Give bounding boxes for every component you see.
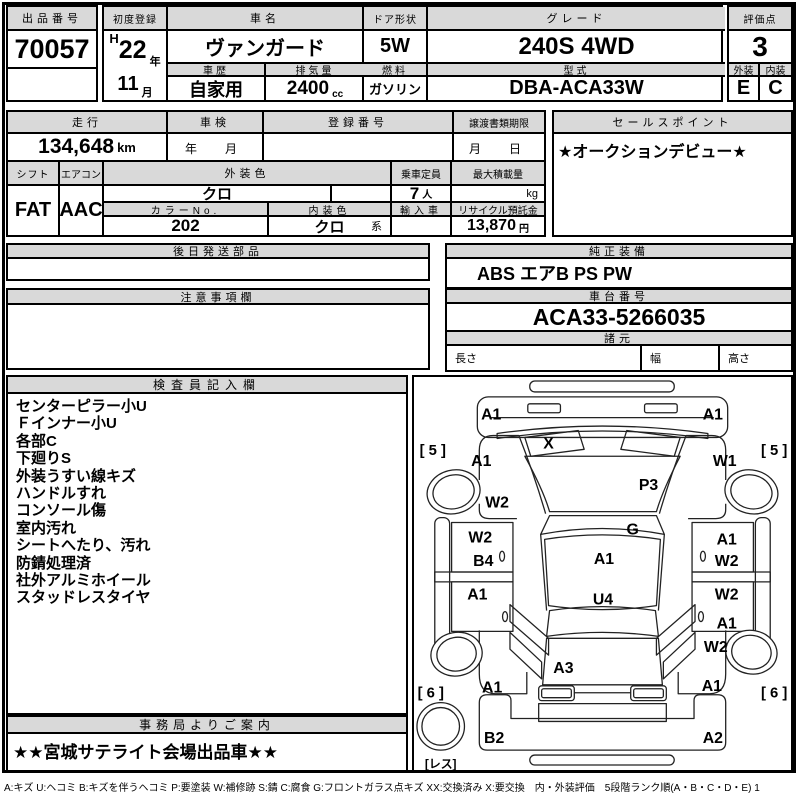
damage-marker: A1	[467, 587, 487, 604]
first-reg-column: 初度登録 H 22 年 11 月	[104, 7, 168, 100]
chassis-value: ACA33-5266035	[447, 304, 791, 332]
mileage-number: 134,648	[38, 135, 114, 159]
car-name-column: 車名 ヴァンガード 車歴 排気量 自家用 2400 cc	[168, 7, 364, 100]
spec-length: 長さ	[447, 346, 642, 370]
transfer-value: 月 日	[454, 134, 544, 162]
damage-marker: G	[627, 521, 639, 538]
damage-marker: A1	[481, 407, 501, 424]
inspector-note: Ｆインナー小U	[16, 415, 396, 432]
inspector-note: 室内汚れ	[16, 520, 396, 537]
exterior-label: 外装	[729, 64, 760, 77]
notes-box: 注意事項欄	[6, 288, 430, 370]
damage-marker: A1	[471, 453, 491, 470]
office-box: 事務局よりご案内 ★★宮城サテライト会場出品車★★	[6, 715, 408, 772]
later-parts-label: 後日発送部品	[8, 245, 428, 259]
legend-line: A:キズ U:ヘコミ B:キズを伴うヘコミ P:要塗装 W:補修跡 S:錆 C:…	[4, 779, 796, 794]
interior-label: 内装	[760, 64, 791, 77]
capacity-unit: 人	[422, 186, 432, 201]
damage-marker: A3	[553, 660, 573, 677]
lot-number-value: 70057	[8, 31, 96, 69]
ext-color-value: クロ	[104, 186, 332, 203]
import-label: 輸入車	[392, 203, 452, 217]
displacement-label: 排気量	[266, 64, 364, 77]
inspector-note: コンソール傷	[16, 502, 396, 519]
damage-marker: A1	[482, 680, 502, 697]
damage-marker: W1	[713, 453, 737, 470]
displacement-unit: cc	[332, 89, 343, 100]
door-column: ドア形状 5W 燃料 ガソリン	[364, 7, 428, 100]
mileage-label: 走行	[8, 112, 168, 134]
inspection-value: 年 月	[168, 134, 264, 162]
fuel-label: 燃料	[364, 64, 426, 77]
damage-marker: A2	[703, 730, 723, 747]
sales-point-box: セールスポイント ★オークションデビュー★	[552, 110, 793, 237]
aircon-label: エアコン	[60, 162, 104, 186]
first-reg-month: 11 月	[104, 69, 166, 100]
damage-marker: B4	[473, 553, 493, 570]
car-diagram-svg: A1A1X[ 5 ][ 5 ]A1W1P3W2GW2B4A1W2A1U4A1W2…	[414, 377, 791, 770]
damage-marker: [レス]	[425, 757, 457, 770]
lot-number-empty-cell	[8, 69, 96, 100]
grade-column: グレード 240S 4WD 型式 DBA-ACA33W	[428, 7, 725, 100]
exterior-grade: E	[729, 77, 760, 100]
damage-marker: A1	[717, 615, 737, 632]
year-value: 22	[119, 36, 147, 65]
damage-marker: [ 5 ]	[761, 443, 787, 459]
grade-value: 240S 4WD	[428, 31, 725, 64]
vehicle-header-table: 初度登録 H 22 年 11 月 車名 ヴァンガード 車歴 排気量 自家用 24…	[102, 5, 723, 102]
first-reg-label: 初度登録	[104, 7, 166, 31]
import-value	[392, 217, 452, 235]
max-load-value: kg	[452, 186, 544, 203]
sales-point-text: ★オークションデビュー★	[558, 138, 788, 162]
door-value: 5W	[364, 31, 426, 64]
displacement-value: 2400 cc	[266, 77, 364, 100]
car-name-value: ヴァンガード	[168, 31, 362, 64]
score-value: 3	[729, 31, 791, 64]
damage-marker: A1	[703, 407, 723, 424]
equipment-label: 純正装備	[447, 245, 791, 259]
capacity-value: 7 人	[392, 186, 452, 203]
recycle-value: 13,870 円	[452, 217, 544, 235]
mileage-value: 134,648 km	[8, 134, 168, 162]
model-code-value: DBA-ACA33W	[428, 77, 725, 100]
interior-grade: C	[760, 77, 791, 100]
spec-height: 高さ	[720, 346, 791, 370]
equipment-value: ABS エアB PS PW	[447, 259, 791, 287]
inspector-note: 各部C	[16, 433, 396, 450]
specs-label: 諸元	[447, 332, 791, 346]
notes-content	[8, 305, 428, 368]
damage-marker: A1	[702, 678, 722, 695]
inspector-box: 検査員記入欄 センターピラー小UＦインナー小U各部C下廻りS外装うすい線キズハン…	[6, 375, 408, 715]
later-parts-box: 後日発送部品	[6, 243, 430, 281]
inspector-note: ハンドルすれ	[16, 485, 396, 502]
shift-value: FAT	[8, 186, 60, 235]
max-load-label: 最大積載量	[452, 162, 544, 186]
score-box: 評価点 3 外装 内装 E C	[727, 5, 793, 102]
model-code-label: 型式	[428, 64, 725, 77]
color-no-label: カラーNo.	[104, 203, 269, 217]
grade-label: グレード	[428, 7, 725, 31]
inspector-note: 防錆処理済	[16, 555, 396, 572]
office-note: ★★宮城サテライト会場出品車★★	[13, 738, 403, 763]
sales-point-label: セールスポイント	[554, 112, 791, 134]
lot-number-box: 出品番号 70057	[6, 5, 98, 102]
car-diagram-box: A1A1X[ 5 ][ 5 ]A1W1P3W2GW2B4A1W2A1U4A1W2…	[412, 375, 793, 772]
month-unit: 月	[142, 84, 153, 100]
car-outline	[435, 381, 770, 765]
damage-marker: P3	[639, 477, 659, 494]
auction-sheet: 出品番号 70057 初度登録 H 22 年 11 月 車名 ヴァンガード 車歴…	[0, 0, 800, 800]
inspector-notes: センターピラー小UＦインナー小U各部C下廻りS外装うすい線キズハンドルすれコンソ…	[16, 398, 396, 698]
damage-marker: A1	[594, 551, 614, 568]
damage-marker: B2	[484, 730, 504, 747]
mileage-unit: km	[117, 140, 136, 155]
int-color-name: クロ	[314, 216, 344, 237]
ext-color-empty-cell	[332, 186, 392, 203]
color-no-value: 202	[104, 217, 269, 235]
damage-marker: W2	[704, 639, 728, 656]
office-label: 事務局よりご案内	[8, 717, 406, 734]
recycle-unit: 円	[519, 220, 529, 235]
recycle-number: 13,870	[467, 217, 516, 235]
damage-marker: [ 5 ]	[420, 443, 446, 459]
info-table: 走行 車検 登録番号 譲渡書類期限 134,648 km 年 月 月 日 シフト…	[6, 110, 546, 237]
reg-no-value	[264, 134, 454, 162]
chassis-label: 車台番号	[447, 290, 791, 304]
transfer-label: 譲渡書類期限	[454, 112, 544, 134]
lot-number-label: 出品番号	[8, 7, 96, 31]
later-parts-content	[8, 259, 428, 279]
reg-no-label: 登録番号	[264, 112, 454, 134]
ext-color-label: 外装色	[104, 162, 392, 186]
damage-marker: W2	[485, 495, 509, 512]
shift-label: シフト	[8, 162, 60, 186]
score-label: 評価点	[729, 7, 791, 31]
displacement-number: 2400	[287, 78, 329, 100]
damage-marker: W2	[715, 553, 739, 570]
inspector-note: センターピラー小U	[16, 398, 396, 415]
month-value: 11	[117, 73, 138, 96]
inspector-note: 社外アルミホイール	[16, 572, 396, 589]
equipment-box: 純正装備 ABS エアB PS PW	[445, 243, 793, 289]
inspector-label: 検査員記入欄	[8, 377, 406, 394]
capacity-label: 乗車定員	[392, 162, 452, 186]
capacity-number: 7	[410, 184, 419, 204]
recycle-label: リサイクル預託金	[452, 203, 544, 217]
fuel-value: ガソリン	[364, 77, 426, 100]
inspector-note: 下廻りS	[16, 450, 396, 467]
inspection-label: 車検	[168, 112, 264, 134]
inspector-note: スタッドレスタイヤ	[16, 589, 396, 606]
inspector-note: 外装うすい線キズ	[16, 468, 396, 485]
era-letter: H	[109, 31, 118, 46]
year-unit: 年	[150, 53, 161, 69]
damage-marker: W2	[715, 587, 739, 604]
history-value: 自家用	[168, 77, 266, 100]
chassis-box: 車台番号 ACA33-5266035 諸元 長さ 幅 高さ	[445, 288, 793, 372]
first-reg-year: H 22 年	[104, 31, 166, 69]
notes-label: 注意事項欄	[8, 290, 428, 305]
damage-marker: W2	[468, 529, 492, 546]
door-label: ドア形状	[364, 7, 426, 31]
int-color-suffix: 系	[371, 218, 382, 234]
aircon-value: AAC	[60, 186, 104, 235]
spec-width: 幅	[642, 346, 720, 370]
car-name-label: 車名	[168, 7, 362, 31]
damage-marker: X	[543, 435, 554, 452]
inspector-note: シートへたり、汚れ	[16, 537, 396, 554]
int-color-value: クロ 系	[269, 217, 392, 235]
damage-marker: [ 6 ]	[418, 686, 444, 702]
damage-marker: [ 6 ]	[761, 686, 787, 702]
damage-marker: U4	[593, 592, 613, 609]
damage-marker: A1	[717, 531, 737, 548]
